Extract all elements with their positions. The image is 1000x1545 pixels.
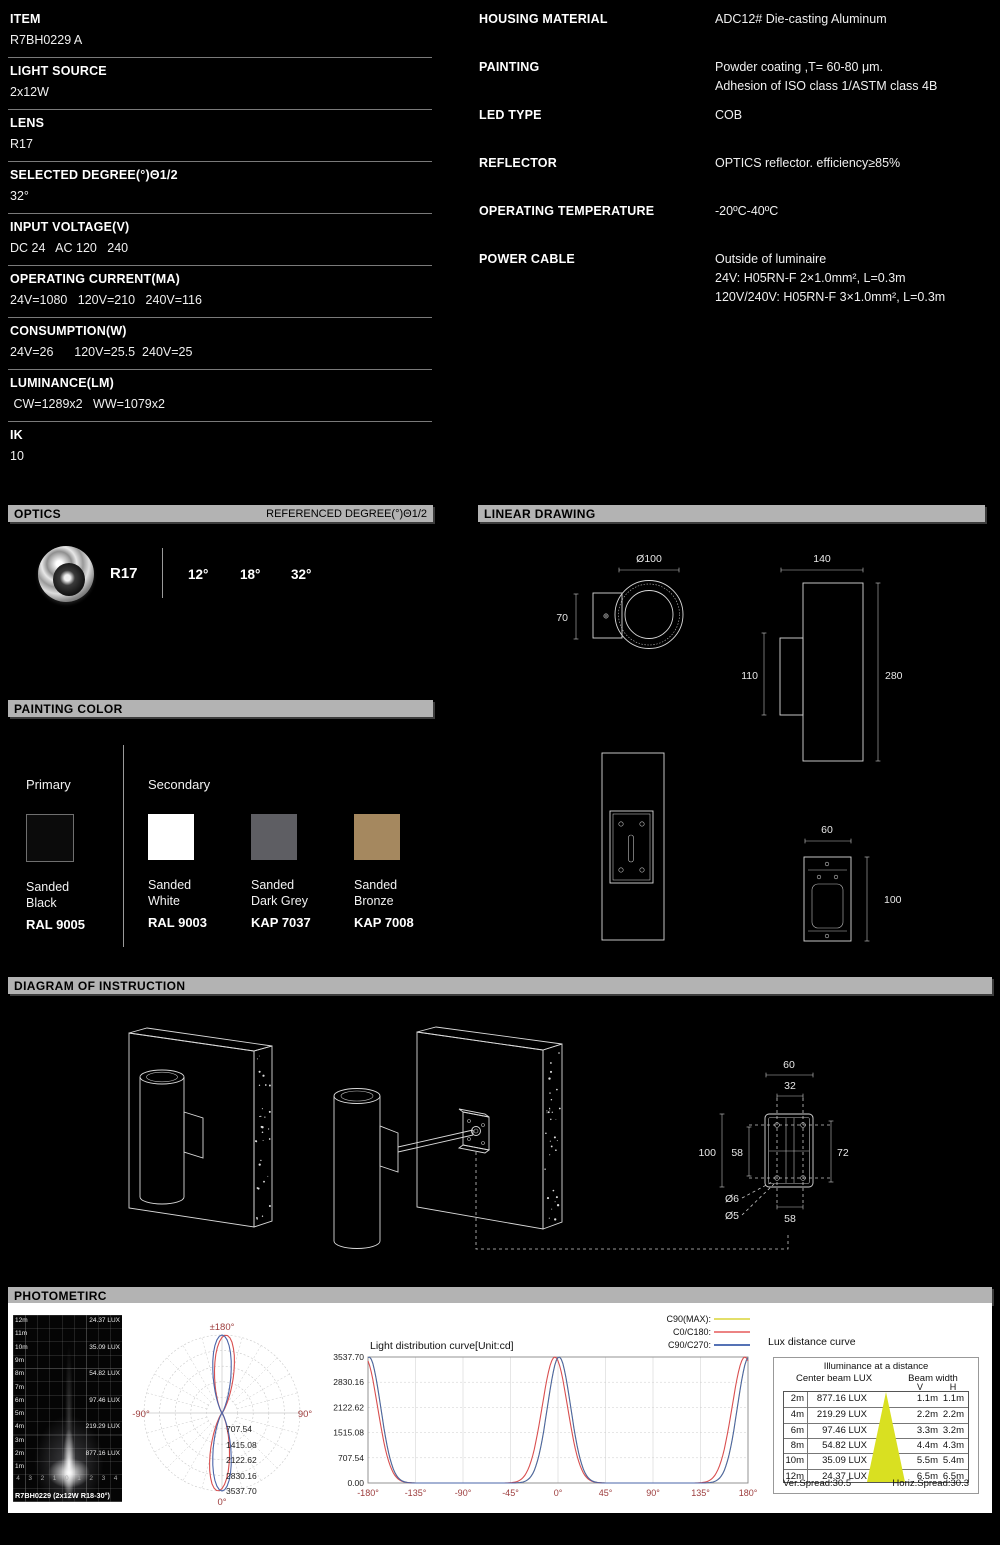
spec-value: -20ºC-40ºC	[715, 202, 778, 221]
legend-entry: C90(MAX):	[638, 1312, 750, 1325]
degree-option: 32°	[291, 567, 311, 582]
swatch-name: Dark Grey	[251, 893, 351, 909]
spec-table-left: ITEMR7BH0229 A LIGHT SOURCE2x12W LENSR17…	[8, 6, 432, 474]
datasheet-page: ITEMR7BH0229 A LIGHT SOURCE2x12W LENSR17…	[0, 0, 1000, 1545]
lux-distance-table: Illuminance at a distance Center beam LU…	[773, 1357, 979, 1494]
color-chip	[26, 814, 74, 862]
paint-swatch-sanded-dark-grey: Sanded Dark Grey KAP 7037	[251, 814, 351, 930]
section-subtitle: REFERENCED DEGREE(°)Θ1/2	[266, 508, 427, 520]
lux-cell: 219.29 LUX	[808, 1408, 872, 1422]
spec-row: POWER CABLE Outside of luminaire24V: H05…	[479, 252, 994, 307]
beam-scale-tick: 1	[51, 1475, 59, 1482]
paint-swatch-sanded-white: Sanded White RAL 9003	[148, 814, 248, 930]
degree-option: 12°	[188, 567, 208, 582]
spec-row: ITEMR7BH0229 A	[8, 6, 432, 58]
y-axis-tick: 2830.16	[333, 1377, 364, 1387]
wall-texture	[255, 1056, 271, 1220]
beam-scale-tick: 2	[38, 1475, 46, 1482]
swatch-code: KAP 7037	[251, 915, 351, 930]
x-axis-tick: 45°	[599, 1488, 613, 1498]
section-title: PHOTOMETIRC	[14, 1289, 107, 1303]
spec-value: R7BH0229 A	[10, 33, 432, 47]
spec-value: Outside of luminaire24V: H05RN-F 2×1.0mm…	[715, 250, 945, 307]
x-axis-tick: 0°	[554, 1488, 563, 1498]
lux-cell: 35.09 LUX	[808, 1454, 872, 1468]
dim-label: 70	[556, 612, 568, 624]
section-title: OPTICS	[14, 507, 61, 521]
reflector-cup	[53, 563, 85, 597]
spec-label: OPERATING TEMPERATURE	[479, 204, 715, 221]
beam-distance-label: 6m	[15, 1397, 24, 1404]
horizontal-spread-value: Horiz.Spread:30.3	[892, 1478, 969, 1489]
beam-lux-label: 877.16 LUX	[86, 1450, 120, 1457]
polar-radial-tick: 3537.70	[226, 1486, 257, 1496]
spec-value: OPTICS reflector. efficiency≥85%	[715, 154, 900, 173]
dim-label: 100	[884, 894, 902, 906]
section-title: DIAGRAM OF INSTRUCTION	[14, 979, 185, 993]
distance-cell: 2m	[784, 1392, 808, 1407]
beam-lux-label: 35.09 LUX	[89, 1344, 120, 1351]
legend-line	[714, 1318, 750, 1320]
primary-group-label: Primary	[26, 777, 71, 792]
polar-radial-tick: 2830.16	[226, 1471, 257, 1481]
spec-row: OPERATING CURRENT(MA)24V=1080 120V=210 2…	[8, 266, 432, 318]
x-axis-tick: 135°	[691, 1488, 710, 1498]
beam-lux-label: 24.37 LUX	[89, 1317, 120, 1324]
spec-label: CONSUMPTION(W)	[10, 324, 432, 338]
beam-distance-label: 10m	[15, 1344, 28, 1351]
secondary-group-label: Secondary	[148, 777, 210, 792]
x-axis-tick: -135°	[405, 1488, 427, 1498]
dim-label: 280	[885, 670, 903, 682]
color-chip	[148, 814, 194, 860]
lux-cell: 877.16 LUX	[808, 1392, 872, 1407]
spec-label: LIGHT SOURCE	[10, 64, 432, 78]
paint-swatch-sanded-bronze: Sanded Bronze KAP 7008	[354, 814, 454, 930]
section-bar-painting-color: PAINTING COLOR	[8, 700, 433, 717]
section-bar-linear-drawing: LINEAR DRAWING	[478, 505, 985, 522]
spec-row: HOUSING MATERIAL ADC12# Die-casting Alum…	[479, 12, 994, 29]
distance-cell: 6m	[784, 1424, 808, 1438]
section-title: LINEAR DRAWING	[484, 507, 596, 521]
spec-label: ITEM	[10, 12, 432, 26]
spec-value: 24V=26 120V=25.5 240V=25	[10, 345, 432, 359]
degree-option: 18°	[240, 567, 260, 582]
instruction-figure: 60 32 100 58 72 Ø6 Ø5 58	[8, 1000, 992, 1285]
paint-swatch-sanded-black: Sanded Black RAL 9005	[26, 814, 126, 932]
swatch-name: Sanded	[148, 877, 248, 893]
spec-label: LENS	[10, 116, 432, 130]
polar-intensity-chart: ±180° -90° 90° 0° 707.54 1415.08 2122.62…	[127, 1318, 317, 1508]
polar-angle-label: ±180°	[210, 1322, 235, 1333]
dim-label: Ø100	[636, 553, 662, 565]
beam-h-cell: 4.3m	[938, 1439, 968, 1453]
chart-title: Light distribution curve[Unit:cd]	[370, 1340, 514, 1352]
dim-label: 100	[698, 1147, 716, 1159]
y-axis-tick: 707.54	[338, 1453, 364, 1463]
spec-value: DC 24 AC 120 240	[10, 241, 432, 255]
beam-distance-label: 5m	[15, 1410, 24, 1417]
polar-radial-tick: 2122.62	[226, 1455, 257, 1465]
spec-label: INPUT VOLTAGE(V)	[10, 220, 432, 234]
dim-label: 60	[821, 824, 833, 836]
spec-label: HOUSING MATERIAL	[479, 12, 715, 29]
spec-value: 10	[10, 449, 432, 463]
beam-scale-tick: 0	[63, 1475, 71, 1482]
spec-value: ADC12# Die-casting Aluminum	[715, 10, 887, 29]
polar-angle-label: 0°	[217, 1497, 226, 1508]
beam-distance-label: 12m	[15, 1317, 28, 1324]
spec-row: PAINTING Powder coating ,T= 60-80 μm.Adh…	[479, 60, 994, 96]
spec-label: LUMINANCE(LM)	[10, 376, 432, 390]
beam-scale-tick: 3	[99, 1475, 107, 1482]
distance-cell: 10m	[784, 1454, 808, 1468]
beam-scale-tick: 2	[87, 1475, 95, 1482]
section-bar-photometric: PHOTOMETIRC	[8, 1287, 992, 1304]
beam-photo-caption: R7BH0229 (2x12W R18-30°)	[15, 1491, 110, 1500]
spec-label: POWER CABLE	[479, 252, 715, 307]
dim-label: 140	[813, 553, 831, 565]
beam-h-cell: 3.2m	[938, 1424, 968, 1438]
dim-label: 72	[837, 1147, 849, 1159]
legend-label: C90/C270:	[668, 1340, 711, 1350]
beam-h-cell: 5.4m	[938, 1454, 968, 1468]
spec-label: LED TYPE	[479, 108, 715, 125]
x-axis-tick: -90°	[455, 1488, 472, 1498]
spec-row: REFLECTOR OPTICS reflector. efficiency≥8…	[479, 156, 994, 173]
beam-h-cell: 2.2m	[938, 1408, 968, 1422]
lux-chart-title: Lux distance curve	[768, 1336, 856, 1348]
legend-line	[714, 1331, 750, 1333]
beam-distance-label: 7m	[15, 1384, 24, 1391]
spec-value: 24V=1080 120V=210 240V=116	[10, 293, 432, 307]
color-chip	[251, 814, 297, 860]
spec-row: IK10	[8, 422, 432, 474]
spec-value: R17	[10, 137, 432, 151]
beam-distance-label: 11m	[15, 1330, 27, 1337]
spec-label: SELECTED DEGREE(°)Θ1/2	[10, 168, 432, 182]
dim-label: Ø6	[725, 1193, 739, 1205]
legend-label: C90(MAX):	[666, 1314, 711, 1324]
swatch-name: Sanded	[251, 877, 351, 893]
beam-distance-label: 9m	[15, 1357, 24, 1364]
column-header-center-beam: Center beam LUX	[796, 1373, 872, 1384]
swatch-name: White	[148, 893, 248, 909]
lux-cell: 54.82 LUX	[808, 1439, 872, 1453]
dim-label: 110	[741, 670, 758, 682]
table-header: Illuminance at a distance	[774, 1361, 978, 1372]
beam-h-cell: 1.1m	[938, 1392, 968, 1407]
reflector-lens-image	[38, 546, 94, 602]
x-axis-tick: 180°	[739, 1488, 758, 1498]
beam-v-cell: 1.1m	[912, 1392, 938, 1407]
spec-row: LIGHT SOURCE2x12W	[8, 58, 432, 110]
spec-label: OPERATING CURRENT(MA)	[10, 272, 432, 286]
beam-distance-label: 2m	[15, 1450, 24, 1457]
beam-scale-tick: 1	[75, 1475, 83, 1482]
dim-label: 58	[784, 1213, 796, 1225]
spec-row: LUMINANCE(LM) CW=1289x2 WW=1079x2	[8, 370, 432, 422]
beam-scale-tick: 3	[26, 1475, 34, 1482]
section-bar-optics: OPTICS REFERENCED DEGREE(°)Θ1/2	[8, 505, 433, 522]
spec-row: CONSUMPTION(W)24V=26 120V=25.5 240V=25	[8, 318, 432, 370]
legend-line	[714, 1344, 750, 1346]
swatch-name: Black	[26, 895, 126, 911]
swatch-code: KAP 7008	[354, 915, 454, 930]
color-chip	[354, 814, 400, 860]
beam-distance-label: 8m	[15, 1370, 24, 1377]
legend-label: C0/C180:	[673, 1327, 711, 1337]
spec-row: LENSR17	[8, 110, 432, 162]
beam-v-cell: 4.4m	[912, 1439, 938, 1453]
spec-value: COB	[715, 106, 742, 125]
spec-row: INPUT VOLTAGE(V)DC 24 AC 120 240	[8, 214, 432, 266]
spec-row: OPERATING TEMPERATURE -20ºC-40ºC	[479, 204, 994, 221]
legend-entry: C90/C270:	[638, 1338, 750, 1351]
beam-v-cell: 3.3m	[912, 1424, 938, 1438]
swatch-code: RAL 9005	[26, 917, 126, 932]
swatch-name: Bronze	[354, 893, 454, 909]
spec-value: CW=1289x2 WW=1079x2	[10, 397, 432, 411]
chart-legend: C90(MAX):C0/C180:C90/C270:	[638, 1312, 750, 1351]
dim-label: 60	[783, 1059, 795, 1071]
x-axis-tick: -45°	[502, 1488, 519, 1498]
swatch-code: RAL 9003	[148, 915, 248, 930]
wall-texture	[544, 1052, 560, 1220]
dim-label: 58	[731, 1147, 743, 1159]
beam-distance-label: 1m	[15, 1463, 24, 1470]
beam-v-cell: 5.5m	[912, 1454, 938, 1468]
section-bar-instruction: DIAGRAM OF INSTRUCTION	[8, 977, 992, 994]
x-axis-tick: 90°	[646, 1488, 660, 1498]
spec-row: LED TYPE COB	[479, 108, 994, 125]
swatch-name: Sanded	[26, 879, 126, 895]
spec-value: Powder coating ,T= 60-80 μm.Adhesion of …	[715, 58, 937, 96]
beam-scale-tick: 4	[14, 1475, 22, 1482]
polar-radial-tick: 1415.08	[226, 1440, 257, 1450]
linear-drawing-figure: Ø100 70 140 110 280 60 100	[470, 525, 1000, 975]
polar-angle-label: -90°	[132, 1409, 150, 1420]
spec-value: 2x12W	[10, 85, 432, 99]
vertical-spread-value: Ver.Spread:30.5	[783, 1478, 851, 1489]
polar-radial-tick: 707.54	[226, 1424, 252, 1434]
beam-distance-label: 4m	[15, 1423, 24, 1430]
light-distribution-chart: Light distribution curve[Unit:cd] 3537.7…	[320, 1335, 760, 1505]
beam-lux-label: 97.46 LUX	[89, 1397, 120, 1404]
x-axis-tick: -180°	[357, 1488, 379, 1498]
dim-label: 32	[784, 1080, 796, 1092]
beam-v-cell: 2.2m	[912, 1408, 938, 1422]
polar-angle-label: 90°	[298, 1409, 313, 1420]
swatch-name: Sanded	[354, 877, 454, 893]
beam-lux-label: 54.82 LUX	[89, 1370, 120, 1377]
spec-row: SELECTED DEGREE(°)Θ1/232°	[8, 162, 432, 214]
beam-lux-label: 219.29 LUX	[86, 1423, 120, 1430]
section-title: PAINTING COLOR	[14, 702, 123, 716]
lux-cell: 97.46 LUX	[808, 1424, 872, 1438]
spec-value: 32°	[10, 189, 432, 203]
spec-label: PAINTING	[479, 60, 715, 96]
y-axis-tick: 2122.62	[333, 1402, 364, 1412]
spec-label: IK	[10, 428, 432, 442]
y-axis-tick: 0.00	[347, 1478, 364, 1488]
beam-photo-chart: R7BH0229 (2x12W R18-30°) 12m11m10m9m8m7m…	[13, 1315, 122, 1502]
distance-cell: 8m	[784, 1439, 808, 1453]
y-axis-tick: 1515.08	[333, 1428, 364, 1438]
beam-scale-tick: 4	[112, 1475, 120, 1482]
beam-distance-label: 3m	[15, 1437, 24, 1444]
lens-model-label: R17	[110, 565, 138, 582]
divider	[162, 548, 163, 598]
spec-label: REFLECTOR	[479, 156, 715, 173]
legend-entry: C0/C180:	[638, 1325, 750, 1338]
y-axis-tick: 3537.70	[333, 1352, 364, 1362]
beam-cone-graphic	[867, 1392, 905, 1482]
distance-cell: 4m	[784, 1408, 808, 1422]
dim-label: Ø5	[725, 1210, 739, 1222]
